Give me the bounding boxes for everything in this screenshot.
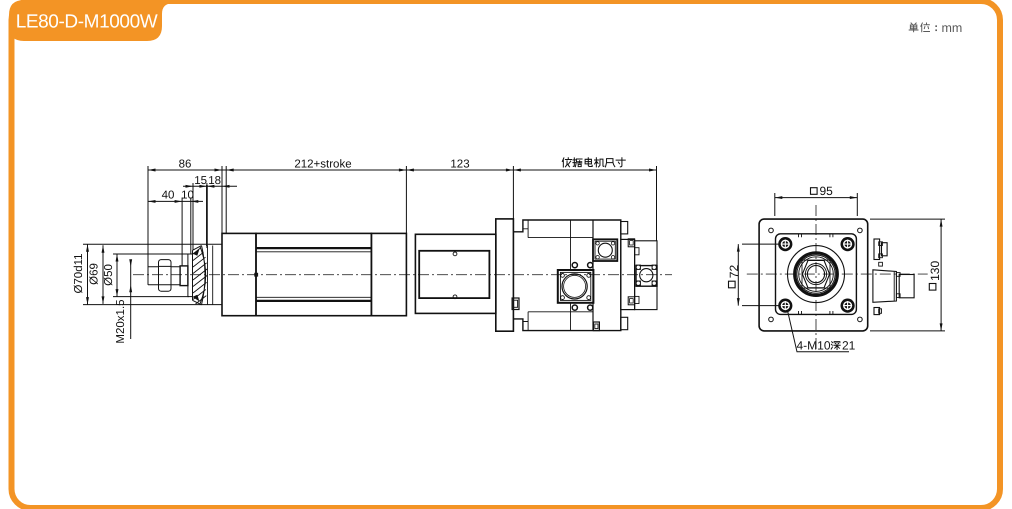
svg-text:10: 10 xyxy=(181,190,194,202)
svg-text:40: 40 xyxy=(162,190,175,202)
svg-text:95: 95 xyxy=(820,184,834,198)
svg-text:M20x1.5: M20x1.5 xyxy=(115,299,127,343)
svg-text:21: 21 xyxy=(842,338,856,352)
svg-text:mm: mm xyxy=(942,21,963,35)
svg-text:4-M10: 4-M10 xyxy=(797,338,831,352)
svg-text:72: 72 xyxy=(727,265,741,279)
svg-text:Ø50: Ø50 xyxy=(103,264,115,286)
svg-text:LE80-D-M1000W: LE80-D-M1000W xyxy=(16,12,158,33)
svg-text:123: 123 xyxy=(450,159,469,171)
svg-text:86: 86 xyxy=(179,159,192,171)
svg-text:18: 18 xyxy=(208,175,221,187)
svg-text:130: 130 xyxy=(928,261,942,281)
svg-text:Ø70d11: Ø70d11 xyxy=(73,253,85,293)
svg-text:212+stroke: 212+stroke xyxy=(294,159,351,171)
svg-text:15: 15 xyxy=(194,175,207,187)
svg-text:Ø69: Ø69 xyxy=(89,263,101,285)
